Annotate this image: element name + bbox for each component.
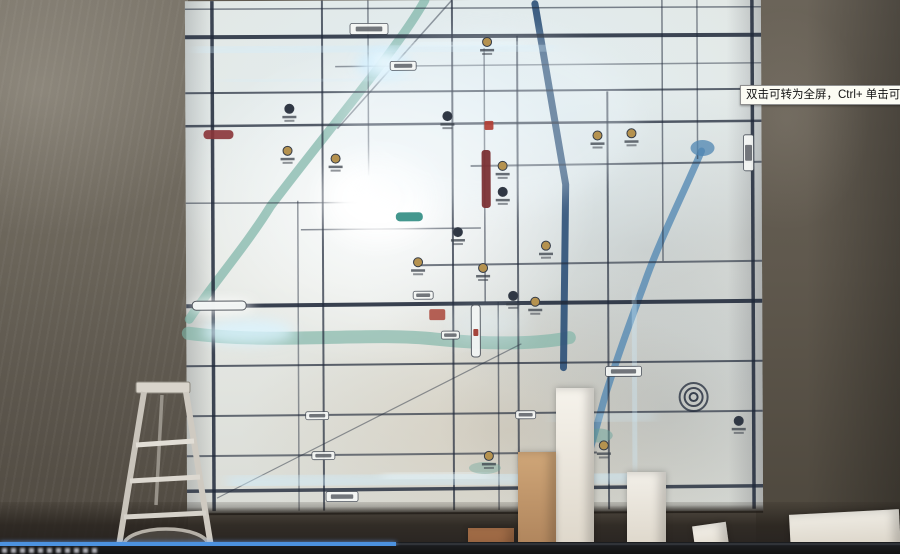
project-logo [285, 104, 294, 113]
project-logo [453, 228, 462, 237]
ladder-top-cap [136, 382, 190, 393]
logo-caption-blur [627, 144, 637, 146]
logo-caption-blur [496, 199, 510, 202]
logo-caption-blur [484, 467, 494, 469]
road-label-text-blur [611, 369, 636, 374]
logo-caption-blur [541, 257, 551, 259]
logo-caption-blur [624, 140, 638, 143]
road-line [662, 0, 663, 261]
logo-caption-blur [282, 116, 296, 119]
map-accent [473, 329, 478, 336]
road-label-text-blur [394, 64, 412, 68]
water-patch [690, 140, 714, 156]
logo-caption-blur [451, 239, 465, 242]
road-line [185, 7, 761, 10]
led-glow [448, 314, 528, 338]
project-logo [627, 129, 636, 138]
map-accent [484, 121, 493, 130]
interchange-spiral [690, 393, 698, 401]
logo-caption-blur [539, 253, 553, 256]
ladder-left-rail [118, 392, 144, 552]
project-logo [483, 37, 492, 46]
project-logo [414, 258, 423, 267]
project-logo [531, 297, 540, 306]
logo-caption-blur [591, 142, 605, 145]
logo-caption-blur [508, 307, 518, 309]
road-label-text-blur [444, 333, 457, 337]
logo-caption-blur [482, 463, 496, 466]
project-logo [443, 112, 452, 121]
led-glow [387, 474, 487, 477]
project-logo [593, 131, 602, 140]
road-label-text-blur [416, 293, 430, 297]
project-logo [734, 416, 743, 425]
watermark-text-blurred [2, 548, 98, 553]
logo-caption-blur [593, 146, 603, 148]
logo-caption-blur [281, 158, 295, 161]
logo-caption-blur [329, 166, 343, 169]
ladder-rung [124, 513, 206, 517]
showroom-wall-right [756, 0, 900, 554]
interchange-spiral [685, 388, 703, 406]
project-logo [283, 146, 292, 155]
logo-caption-blur [530, 313, 540, 315]
road-label-text-blur [331, 494, 353, 498]
road-label-text-blur [519, 413, 533, 417]
road-line [421, 261, 762, 265]
illuminated-map-panel [185, 0, 763, 513]
project-logo [599, 441, 608, 450]
logo-caption-blur [453, 243, 463, 245]
project-logo [509, 291, 518, 300]
video-controls-bar[interactable] [0, 546, 900, 554]
logo-caption-blur [411, 269, 425, 272]
logo-caption-blur [506, 303, 520, 306]
road-label-text-blur [356, 26, 383, 31]
logo-caption-blur [478, 279, 488, 281]
logo-caption-blur [482, 53, 492, 55]
logo-caption-blur [442, 127, 452, 129]
map-accent [482, 150, 491, 208]
logo-caption-blur [476, 275, 490, 278]
fullscreen-tooltip: 双击可转为全屏，Ctrl+ 单击可转为全屏 [740, 85, 900, 105]
logo-caption-blur [528, 309, 542, 312]
ladder-rung [130, 477, 200, 481]
logo-caption-blur [734, 432, 744, 434]
foam-block [518, 452, 556, 554]
logo-caption-blur [284, 120, 294, 122]
foam-block [556, 388, 594, 554]
map-artwork [185, 0, 763, 513]
logo-caption-blur [480, 49, 494, 52]
road-line [187, 411, 763, 417]
ladder-rear-rail [156, 395, 162, 505]
road-line [298, 201, 299, 511]
map-accent [203, 130, 233, 139]
logo-caption-blur [413, 273, 423, 275]
logo-caption-blur [496, 173, 510, 176]
logo-caption-blur [331, 170, 341, 172]
ladder-right-rail [186, 392, 212, 553]
road-line [697, 0, 698, 159]
logo-caption-blur [597, 452, 611, 455]
logo-caption-blur [599, 456, 609, 458]
map-accent [429, 309, 445, 320]
road-label-text-blur [745, 145, 752, 161]
project-logo [331, 154, 340, 163]
project-logo [541, 241, 550, 250]
map-accent [192, 301, 246, 310]
map-accent [396, 212, 423, 221]
led-glow [633, 297, 636, 465]
logo-caption-blur [498, 177, 508, 179]
river-band [583, 151, 703, 474]
step-ladder [100, 375, 230, 554]
logo-caption-blur [283, 162, 293, 164]
logo-caption-blur [732, 428, 746, 431]
logo-caption-blur [440, 123, 454, 126]
project-logo [479, 263, 488, 272]
road-label-text-blur [315, 454, 331, 458]
ladder-rung [136, 441, 194, 445]
project-logo [484, 451, 493, 460]
road-line [752, 0, 754, 509]
project-logo [498, 161, 507, 170]
road-label-text-blur [309, 414, 325, 418]
video-frame[interactable]: 双击可转为全屏，Ctrl+ 单击可转为全屏 [0, 0, 900, 554]
project-logo [498, 187, 507, 196]
road-line [186, 361, 762, 367]
logo-caption-blur [498, 203, 508, 205]
